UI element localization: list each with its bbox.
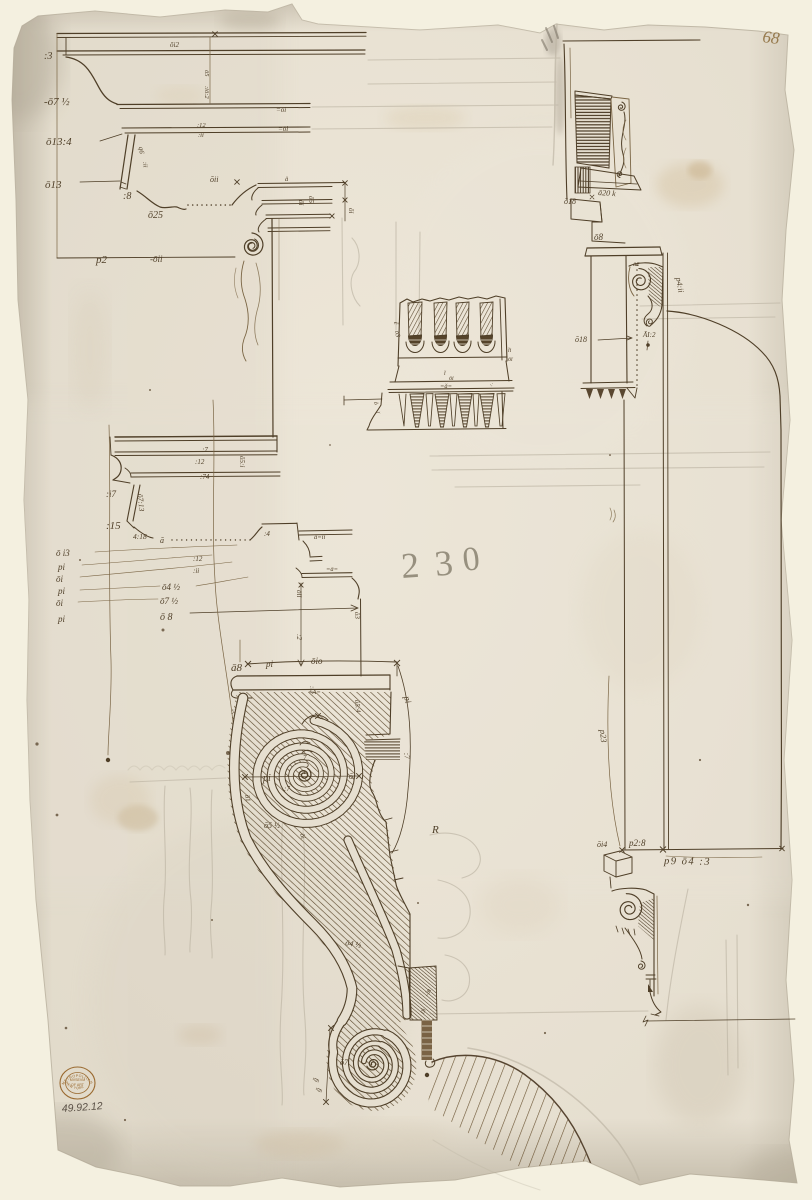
svg-text:=ā=: =ā=: [326, 566, 338, 573]
svg-text:ō4 ½: ō4 ½: [162, 582, 180, 592]
svg-text:ō1: ō1: [243, 794, 252, 802]
svg-text:=ōi: =ōi: [278, 125, 288, 133]
svg-text::15: :15: [106, 520, 121, 532]
svg-text:7: 7: [303, 754, 307, 762]
svg-text:ą6: ą6: [137, 146, 146, 154]
svg-text:-ōii: -ōii: [150, 254, 163, 264]
svg-text:68: 68: [762, 27, 782, 48]
svg-text::7: :7: [284, 785, 290, 793]
svg-text:ōi: ōi: [56, 574, 64, 584]
svg-text::ii: :ii: [141, 161, 149, 168]
svg-text:p2:8: p2:8: [628, 838, 646, 848]
svg-text:pi: pi: [265, 659, 274, 669]
svg-text:pi: pi: [57, 562, 66, 572]
svg-text:ă=ii: ă=ii: [314, 534, 325, 541]
svg-text::ii: :ii: [193, 567, 199, 575]
svg-text:ōio: ōio: [311, 656, 323, 666]
svg-text:ō7: ō7: [340, 1058, 349, 1067]
svg-text::ii: :ii: [198, 132, 204, 139]
svg-text:ĀI:2: ĀI:2: [642, 331, 656, 339]
svg-text:⁖: ⁖: [489, 383, 493, 389]
svg-text:2: 2: [400, 545, 421, 586]
svg-text:ā20 k: ā20 k: [598, 188, 617, 198]
svg-text:p23: p23: [598, 728, 609, 743]
svg-text:ō 8: ō 8: [160, 612, 173, 623]
svg-text:=ă=: =ă=: [440, 383, 452, 390]
svg-text:·: ·: [77, 1087, 78, 1092]
svg-text::74: :74: [200, 473, 210, 481]
svg-text:ōi: ōi: [56, 598, 64, 608]
svg-text:R: R: [431, 824, 439, 836]
svg-text::12: :12: [195, 458, 205, 466]
svg-text::iō:2: :iō:2: [203, 86, 210, 99]
svg-text:ā2: ā2: [633, 261, 640, 268]
svg-text:ō3: ō3: [353, 612, 361, 620]
svg-text:ō18: ō18: [564, 197, 576, 206]
svg-text::7: :7: [202, 446, 208, 454]
svg-text:ō5:i: ō5:i: [238, 456, 246, 467]
svg-text::i7: :i7: [106, 489, 116, 499]
svg-text:pi: pi: [57, 586, 66, 596]
svg-text:=ōi: =ōi: [276, 106, 286, 114]
svg-text:ōi2: ōi2: [170, 41, 179, 49]
svg-text:p2: p2: [95, 254, 108, 266]
svg-text:ō13: ō13: [45, 179, 62, 191]
svg-text:ō i3: ō i3: [56, 548, 70, 558]
svg-text:ōi: ōi: [349, 772, 355, 781]
svg-text::4: :4: [264, 530, 270, 538]
svg-text:ōi4: ōi4: [597, 840, 607, 849]
svg-text:ā8: ā8: [231, 662, 243, 674]
svg-text:ā: ā: [160, 536, 164, 545]
svg-text:pi: pi: [57, 614, 66, 624]
svg-text:ō5:4: ō5:4: [353, 699, 362, 713]
svg-text::2: :2: [295, 634, 303, 640]
svg-text:pi: pi: [262, 773, 271, 784]
svg-text:ōii: ōii: [210, 175, 218, 184]
svg-text:ōi: ōi: [347, 208, 355, 214]
svg-text:ō5 ½: ō5 ½: [264, 821, 280, 830]
svg-text:ōii: ōii: [295, 590, 303, 597]
svg-text:4:18: 4:18: [133, 532, 147, 541]
svg-text:ō8: ō8: [594, 232, 604, 242]
svg-text:ō7 ½: ō7 ½: [160, 596, 178, 606]
svg-text:ō13:4: ō13:4: [46, 136, 72, 148]
svg-text::12: :12: [197, 122, 206, 129]
svg-text:-ō7 ½: -ō7 ½: [44, 96, 70, 108]
svg-text:MVSEVM: MVSEVM: [70, 1078, 86, 1082]
svg-text:ōi: ōi: [297, 200, 305, 206]
svg-text:ĭi: ĭi: [508, 348, 512, 354]
svg-text:ō25: ō25: [148, 210, 163, 221]
svg-text:ō5: ō5: [203, 70, 210, 77]
svg-text::3: :3: [44, 51, 52, 62]
svg-text::8: :8: [123, 191, 131, 202]
svg-text:ō18: ō18: [575, 335, 587, 344]
